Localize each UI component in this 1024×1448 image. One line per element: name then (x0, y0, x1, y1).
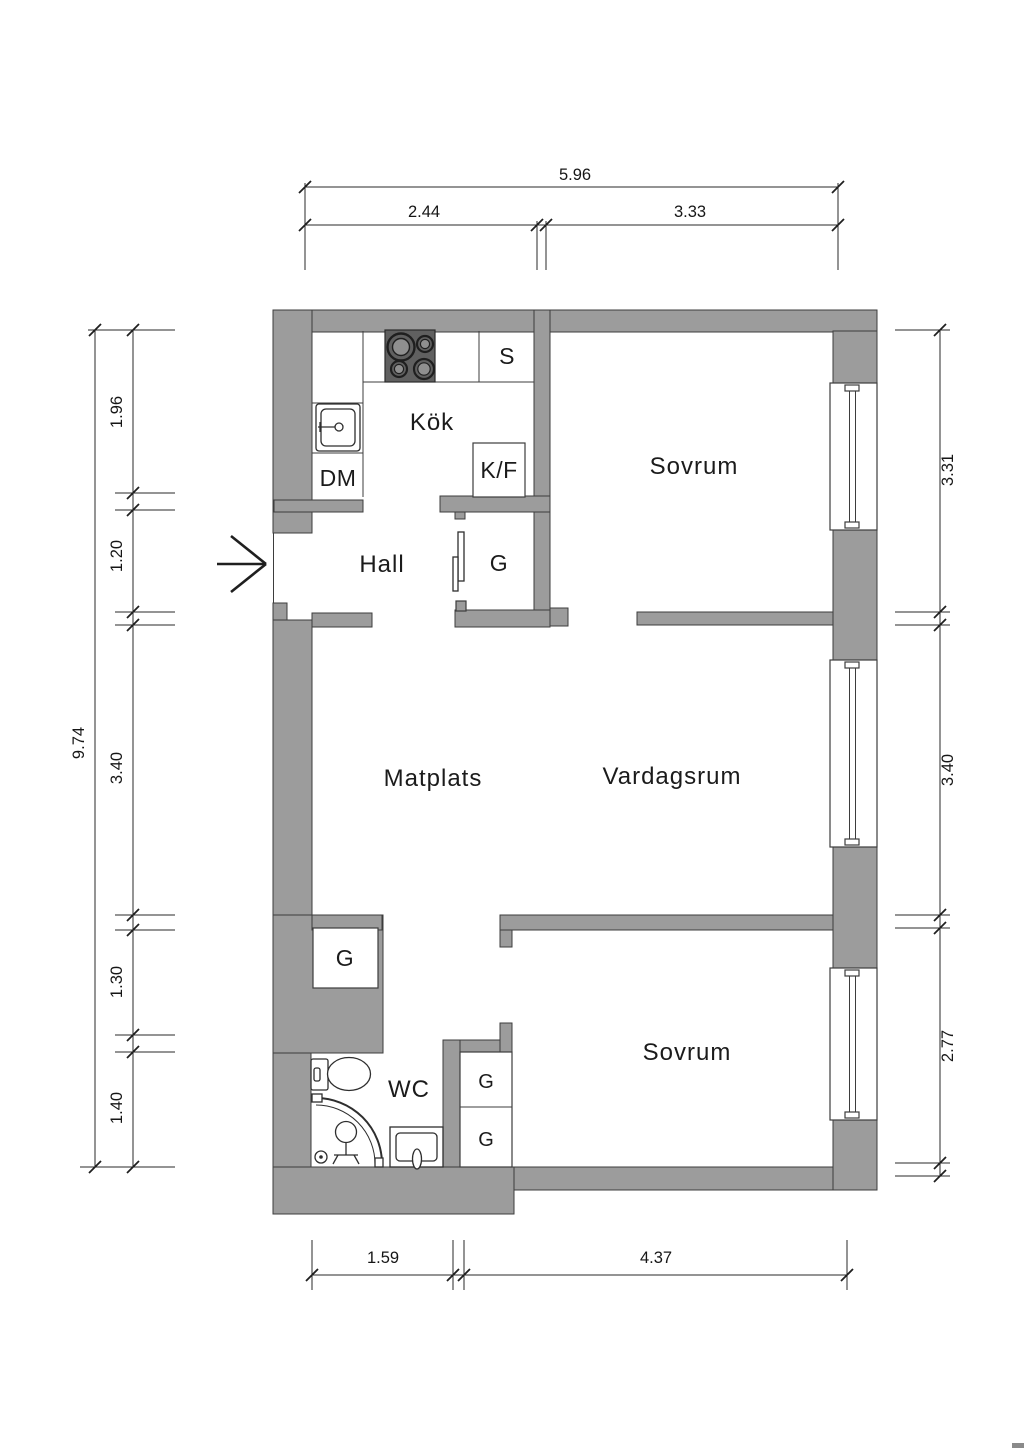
dim-left-d: 1.30 (108, 966, 126, 998)
interior-walls (312, 310, 833, 1167)
room-label-wc: WC (388, 1076, 430, 1103)
window-bedroom-bottom (830, 968, 877, 1120)
wall-kitchen-hall (274, 500, 363, 512)
wall-entrance-jamb-top (273, 512, 312, 533)
dimensions-top: 5.96 2.44 3.33 (299, 166, 844, 270)
dim-right-a: 3.31 (939, 454, 957, 486)
dim-left-e: 1.40 (108, 1092, 126, 1124)
dimensions-bottom: 1.59 4.37 (306, 1240, 853, 1290)
wall-dining-stub-top (312, 613, 372, 627)
dim-left-b: 1.20 (108, 540, 126, 572)
label-pantry: S (499, 343, 515, 369)
room-label-dining: Matplats (384, 765, 483, 792)
label-closet-lower: G (336, 945, 354, 971)
wall-kitchen-right (534, 310, 550, 625)
floor-plan: Kök Hall Matplats Vardagsrum Sovrum Sovr… (0, 0, 1024, 1448)
dim-right-b: 3.40 (939, 754, 957, 786)
wall-top (273, 310, 877, 332)
wall-bottom-left (273, 1167, 514, 1214)
wall-kitchen-south-jamb (455, 512, 465, 519)
shower-head-icon (336, 1122, 357, 1143)
wall-wc-left (443, 1040, 460, 1167)
dim-right-c: 2.77 (939, 1030, 957, 1062)
wall-bedroom-bottom-jamb (500, 930, 512, 947)
entrance-arrow (217, 536, 266, 592)
dim-left-a: 1.96 (108, 396, 126, 428)
wall-right-4 (833, 1120, 877, 1190)
washbasin (390, 1127, 443, 1169)
hall-closet-door (453, 532, 466, 611)
shower (312, 1094, 383, 1167)
dimensions-left: 9.74 1.96 1.20 3.40 1.30 1.40 (70, 324, 175, 1173)
dim-top-b: 3.33 (674, 203, 706, 221)
wall-bedroom-bottom-top (500, 915, 833, 930)
dimensions-right: 3.31 3.40 2.77 (895, 324, 957, 1182)
room-label-bedroom-bottom: Sovrum (643, 1039, 732, 1066)
room-label-bedroom-top: Sovrum (650, 453, 739, 480)
stove (385, 330, 435, 382)
dim-bottom-a: 1.59 (367, 1249, 399, 1267)
wall-bedroom-top-stub (550, 608, 568, 626)
label-dishwasher: DM (320, 465, 357, 491)
label-closet-hall: G (490, 550, 508, 576)
dim-top-a: 2.44 (408, 203, 440, 221)
dim-left-total: 9.74 (70, 727, 88, 759)
dim-left-c: 3.40 (108, 752, 126, 784)
label-closet-bedroom-upper: G (478, 1071, 494, 1093)
wall-entrance-jamb-bottom (273, 603, 287, 620)
wall-wc-top (460, 1040, 500, 1052)
room-label-kitchen: Kök (410, 409, 454, 436)
wall-bedroom-top-bottom (637, 612, 833, 625)
floor-plan-page: Kök Hall Matplats Vardagsrum Sovrum Sovr… (0, 0, 1024, 1448)
wall-right-2 (833, 530, 877, 660)
room-label-hall: Hall (359, 551, 404, 578)
corner-mark (1012, 1443, 1024, 1448)
wall-wc-jamb-upper (500, 1023, 512, 1052)
wall-right-3 (833, 847, 877, 968)
wall-bottom-right (514, 1167, 877, 1190)
wall-right-1 (833, 331, 877, 383)
kitchen-sink (316, 404, 360, 451)
wall-hall-closet-bottom (455, 610, 550, 627)
wall-left-lower (273, 1053, 311, 1167)
toilet (311, 1058, 371, 1091)
dim-bottom-b: 4.37 (640, 1249, 672, 1267)
window-bedroom-top (830, 383, 877, 530)
wall-left-mid (273, 620, 312, 915)
window-living (830, 660, 877, 847)
room-label-living: Vardagsrum (603, 763, 742, 790)
wall-left-upper (273, 310, 312, 512)
label-closet-bedroom-lower: G (478, 1129, 494, 1151)
wall-kitchen-south (440, 496, 550, 512)
label-fridge-freezer: K/F (480, 457, 517, 483)
dim-top-total: 5.96 (559, 166, 591, 184)
